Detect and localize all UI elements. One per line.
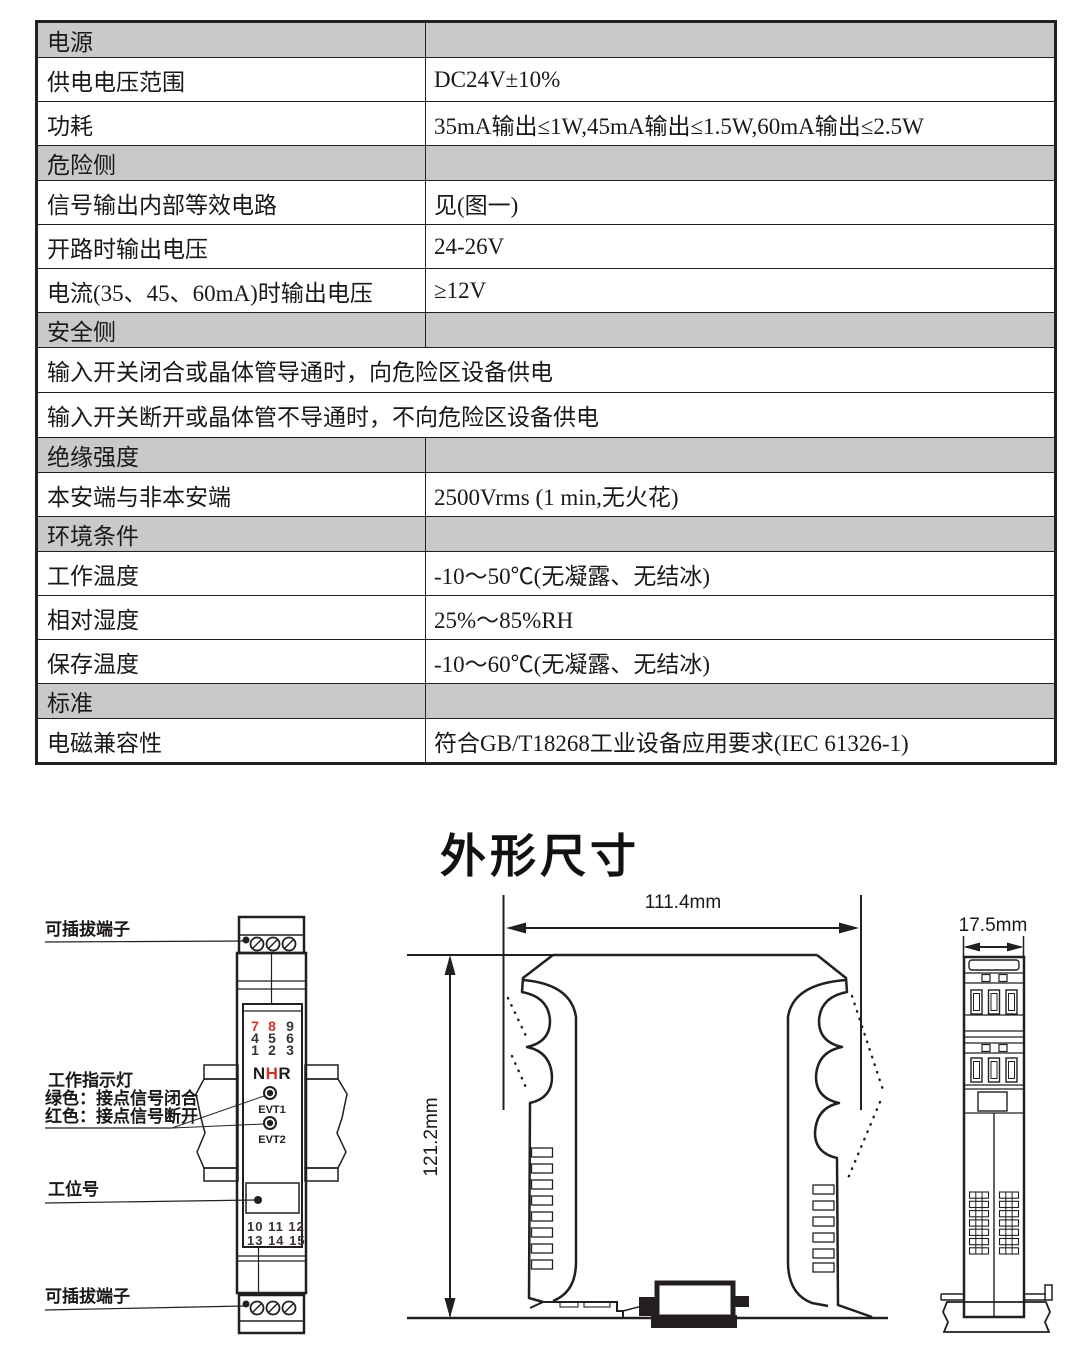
table-row: 电磁兼容性符合GB/T18268工业设备应用要求(IEC 61326-1) — [38, 718, 1054, 762]
row-label: 供电电压范围 — [38, 58, 425, 101]
table-row: 电源 — [38, 23, 1054, 57]
row-label: 安全侧 — [38, 313, 425, 347]
leader-line — [45, 1200, 257, 1203]
leader-dot — [243, 1301, 250, 1308]
row-label: 保存温度 — [38, 640, 425, 683]
height-dimension: 121.2mm — [407, 955, 560, 1318]
tag-holder — [978, 1092, 1007, 1111]
row-value: -10～60℃(无凝露、无结冰) — [425, 640, 1054, 683]
table-row: 输入开关断开或晶体管不导通时，不向危险区设备供电 — [38, 392, 1054, 437]
row-label: 危险侧 — [38, 146, 425, 180]
row-value: 见(图一) — [425, 181, 1054, 224]
callout-tag-label: 工位号 — [48, 1179, 99, 1199]
row-label: 输入开关闭合或晶体管导通时，向危险区设备供电 — [38, 348, 1054, 392]
terminal-slots-top — [971, 990, 1017, 1014]
module-end-outline — [964, 957, 1024, 1317]
front-view-drawing: 可插拔端子 工作指示灯 绿色：接点信号闭合 红色：接点信号断开 工位号 可插拔端… — [40, 905, 370, 1355]
brand-logo: NHR — [253, 1064, 291, 1083]
row-label: 工作温度 — [38, 552, 425, 595]
table-row: 绝缘强度 — [38, 437, 1054, 472]
led-evt2: EVT2 — [258, 1117, 286, 1146]
svg-text:1: 1 — [251, 1042, 259, 1058]
vent-slots-left — [532, 1148, 553, 1269]
terminal-numbers-bottom: 10 11 12 13 14 15 — [247, 1219, 306, 1248]
row-value — [425, 146, 1054, 180]
table-row: 电流(35、45、60mA)时输出电压≥12V — [38, 268, 1054, 312]
mounting-foot — [530, 1302, 650, 1318]
row-label: 环境条件 — [38, 517, 425, 551]
leader-dot — [254, 1196, 262, 1204]
table-row: 保存温度-10～60℃(无凝露、无结冰) — [38, 639, 1054, 683]
height-dimension-label: 121.2mm — [421, 1097, 442, 1176]
row-label: 开路时输出电压 — [38, 225, 425, 268]
row-value — [425, 684, 1054, 718]
din-rail-left — [196, 1065, 238, 1181]
led-evt1: EVT1 — [258, 1087, 286, 1116]
callout-terminal-top-label: 可插拔端子 — [45, 919, 130, 939]
row-value: 2500Vrms (1 min,无火花) — [425, 473, 1054, 516]
callout-terminal-bottom-label: 可插拔端子 — [45, 1286, 130, 1306]
table-row: 安全侧 — [38, 312, 1054, 347]
bottom-terminal-block — [239, 1295, 304, 1333]
depth-dimension: 17.5mm — [959, 915, 1028, 958]
row-label: 功耗 — [38, 102, 425, 145]
svg-text:EVT2: EVT2 — [258, 1134, 286, 1146]
row-value — [425, 438, 1054, 472]
row-value: 25%～85%RH — [425, 596, 1054, 639]
table-row: 标准 — [38, 683, 1054, 718]
depth-dimension-label: 17.5mm — [959, 915, 1028, 936]
svg-text:EVT1: EVT1 — [258, 1104, 286, 1116]
callout-indicator-title: 工作指示灯 — [48, 1070, 133, 1090]
table-row: 危险侧 — [38, 145, 1054, 180]
leader-dot — [243, 937, 250, 944]
table-row: 相对湿度25%～85%RH — [38, 595, 1054, 639]
row-value: -10～50℃(无凝露、无结冰) — [425, 552, 1054, 595]
top-terminal-block — [239, 917, 304, 953]
callout-indicator-red: 红色：接点信号断开 — [45, 1106, 198, 1126]
row-value: 24-26V — [425, 225, 1054, 268]
vent-slots-right — [813, 1185, 834, 1272]
svg-text:13 14 15: 13 14 15 — [247, 1233, 306, 1248]
table-row: 供电电压范围DC24V±10% — [38, 57, 1054, 101]
end-view-drawing: 17.5mm — [930, 905, 1065, 1350]
svg-text:3: 3 — [286, 1042, 294, 1058]
row-label: 电流(35、45、60mA)时输出电压 — [38, 269, 425, 312]
width-dimension: 111.4mm — [504, 892, 862, 1110]
din-rail-section — [941, 1285, 1052, 1332]
row-value: 35mA输出≤1W,45mA输出≤1.5W,60mA输出≤2.5W — [425, 102, 1054, 145]
tag-window — [246, 1183, 299, 1213]
din-rail-right — [305, 1065, 347, 1181]
row-label: 相对湿度 — [38, 596, 425, 639]
row-label: 绝缘强度 — [38, 438, 425, 472]
table-row: 本安端与非本安端2500Vrms (1 min,无火花) — [38, 472, 1054, 516]
svg-text:2: 2 — [268, 1042, 276, 1058]
table-row: 开路时输出电压24-26V — [38, 224, 1054, 268]
svg-text:10 11 12: 10 11 12 — [247, 1219, 305, 1234]
width-dimension-label: 111.4mm — [645, 892, 721, 913]
row-value: DC24V±10% — [425, 58, 1054, 101]
leader-line — [45, 941, 245, 942]
table-row: 信号输出内部等效电路见(图一) — [38, 180, 1054, 224]
row-value: ≥12V — [425, 269, 1054, 312]
row-label: 本安端与非本安端 — [38, 473, 425, 516]
side-view-drawing: 111.4mm 121.2mm — [395, 870, 895, 1350]
front-panel: 7 8 9 4 5 6 1 2 3 NHR EVT1 EVT2 10 11 12 — [243, 1004, 306, 1248]
row-value — [425, 313, 1054, 347]
spec-table: 电源供电电压范围DC24V±10%功耗35mA输出≤1W,45mA输出≤1.5W… — [35, 20, 1057, 765]
row-value — [425, 23, 1054, 57]
table-row: 工作温度-10～50℃(无凝露、无结冰) — [38, 551, 1054, 595]
din-clip — [639, 1283, 749, 1328]
row-value — [425, 517, 1054, 551]
table-row: 环境条件 — [38, 516, 1054, 551]
table-row: 功耗35mA输出≤1W,45mA输出≤1.5W,60mA输出≤2.5W — [38, 101, 1054, 145]
terminal-numbers-top: 7 8 9 4 5 6 1 2 3 — [251, 1018, 294, 1058]
row-label: 电源 — [38, 23, 425, 57]
row-label: 标准 — [38, 684, 425, 718]
terminal-slots-bottom — [971, 1058, 1017, 1082]
row-label: 输入开关断开或晶体管不导通时，不向危险区设备供电 — [38, 393, 1054, 437]
leader-line — [45, 1306, 244, 1310]
row-value: 符合GB/T18268工业设备应用要求(IEC 61326-1) — [425, 719, 1054, 762]
callout-indicator-green: 绿色：接点信号闭合 — [45, 1088, 199, 1108]
table-row: 输入开关闭合或晶体管导通时，向危险区设备供电 — [38, 347, 1054, 392]
row-label: 电磁兼容性 — [38, 719, 425, 762]
row-label: 信号输出内部等效电路 — [38, 181, 425, 224]
